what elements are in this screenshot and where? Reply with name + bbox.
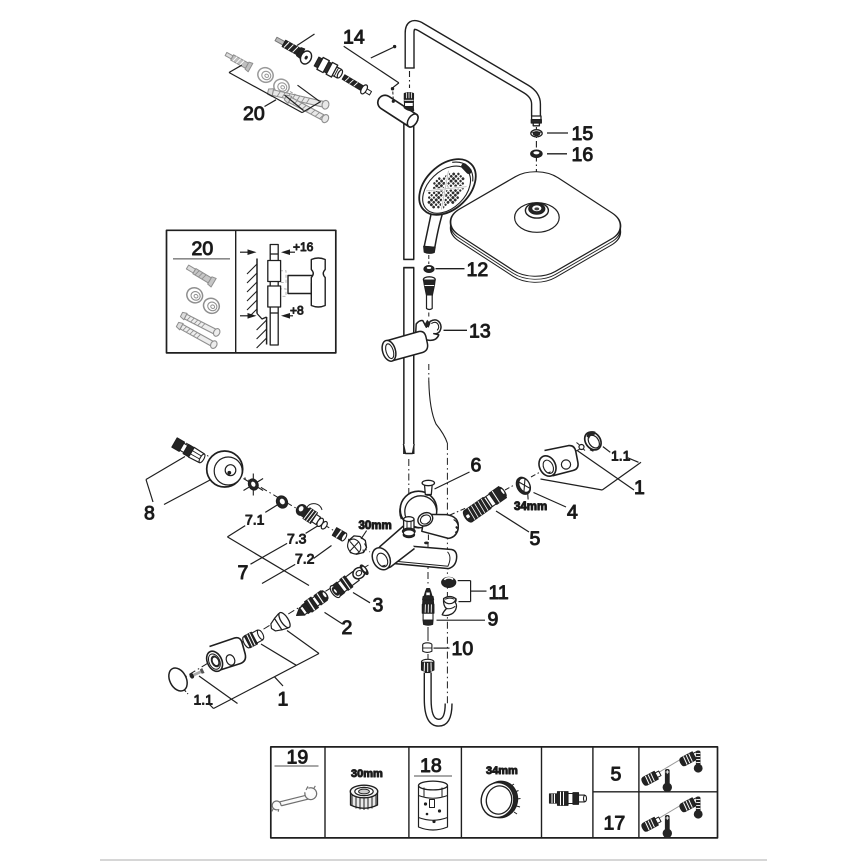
svg-text:12: 12 <box>467 259 489 281</box>
svg-text:1.1: 1.1 <box>611 448 631 464</box>
svg-text:13: 13 <box>469 321 491 343</box>
svg-text:14: 14 <box>343 27 365 49</box>
svg-text:1.1: 1.1 <box>194 692 214 708</box>
svg-text:7: 7 <box>238 562 249 584</box>
svg-text:4: 4 <box>567 502 578 524</box>
svg-text:7.3: 7.3 <box>287 531 307 547</box>
svg-text:34mm: 34mm <box>514 501 547 513</box>
svg-text:+8: +8 <box>290 304 304 318</box>
svg-text:11: 11 <box>489 582 509 604</box>
svg-text:7.2: 7.2 <box>295 551 315 567</box>
svg-text:16: 16 <box>572 144 594 166</box>
svg-text:30mm: 30mm <box>351 768 383 780</box>
svg-text:15: 15 <box>572 123 594 145</box>
svg-text:9: 9 <box>488 609 499 631</box>
svg-text:5: 5 <box>611 764 622 786</box>
svg-text:5: 5 <box>530 528 541 550</box>
svg-text:6: 6 <box>471 455 482 477</box>
svg-text:2: 2 <box>342 617 353 639</box>
svg-text:1: 1 <box>278 689 289 711</box>
svg-text:3: 3 <box>373 595 384 617</box>
svg-text:1: 1 <box>634 477 645 499</box>
svg-text:7.1: 7.1 <box>245 512 265 528</box>
svg-text:8: 8 <box>144 503 155 525</box>
svg-text:18: 18 <box>420 755 442 777</box>
svg-text:10: 10 <box>452 638 474 660</box>
svg-text:30mm: 30mm <box>359 520 392 532</box>
svg-text:+16: +16 <box>293 240 314 254</box>
svg-text:34mm: 34mm <box>486 765 518 777</box>
svg-text:20: 20 <box>192 238 214 260</box>
svg-text:20: 20 <box>243 103 265 125</box>
svg-text:17: 17 <box>604 813 626 835</box>
